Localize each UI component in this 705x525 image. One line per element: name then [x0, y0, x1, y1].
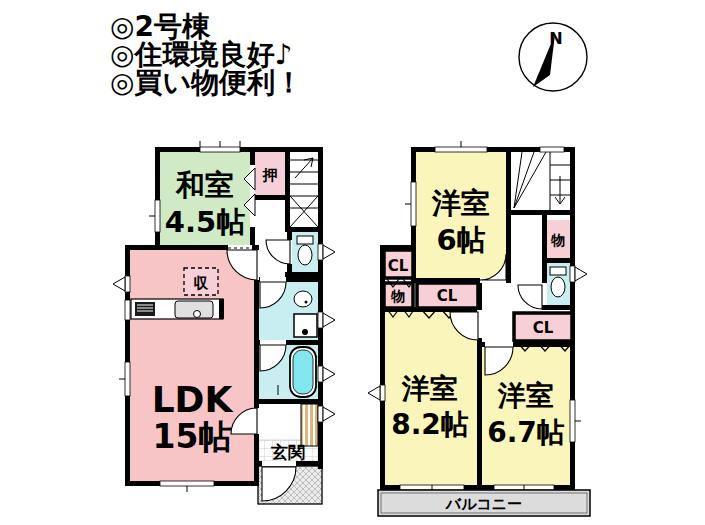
- stairs-1f: [290, 158, 318, 227]
- mono-left-label: 物: [390, 288, 405, 304]
- room6-size-label: 6帖: [436, 223, 485, 257]
- washitsu-size-label: 4.5帖: [165, 205, 245, 239]
- stove-icon: [135, 302, 155, 316]
- header-line-3: ◎買い物便利！: [110, 66, 303, 99]
- room67-name-label: 洋室: [497, 379, 554, 412]
- cl-mid-label: CL: [437, 287, 458, 305]
- storage-label: 収: [194, 274, 209, 292]
- balcony: バルコニー: [378, 490, 590, 516]
- room82-name-label: 洋室: [401, 372, 458, 405]
- floor1-plan: 和室 4.5帖 LDK 15帖 押 収 玄関: [113, 141, 335, 504]
- compass: N: [519, 23, 587, 91]
- oshiire-label: 押: [262, 166, 278, 184]
- header-text: ◎2号棟 ◎住環境良好♪ ◎買い物便利！: [110, 10, 303, 99]
- washbasin-icon: [294, 291, 312, 307]
- washitsu-name-label: 和室: [175, 168, 234, 202]
- shoe-cabinet: [301, 404, 318, 446]
- ldk-name-label: LDK: [152, 379, 234, 420]
- stairs-2f: [514, 152, 570, 210]
- toilet-1f-icon: [297, 236, 313, 265]
- bathtub-icon: [290, 347, 316, 397]
- cl-right-label: CL: [533, 319, 554, 337]
- ldk-size-label: 15帖: [153, 417, 232, 456]
- kitchen-counter: [131, 299, 224, 319]
- cl-left-label: CL: [388, 257, 409, 275]
- compass-north-label: N: [549, 29, 562, 48]
- room6-name-label: 洋室: [431, 186, 490, 220]
- mono-2f-label: 物: [550, 232, 565, 248]
- floorplan-page: ◎2号棟 ◎住環境良好♪ ◎買い物便利！ N: [0, 0, 705, 525]
- washing-machine-icon: [294, 314, 317, 337]
- floor2-plan: バルコニー 洋室 6帖 洋室 8.2帖 洋室 6.7帖 CL 物 CL CL 物: [368, 141, 590, 516]
- room82-size-label: 8.2帖: [391, 408, 469, 441]
- toilet-2f-icon: [550, 267, 566, 297]
- genkan-label: 玄関: [270, 442, 305, 462]
- balcony-label: バルコニー: [445, 495, 522, 513]
- room67-size-label: 6.7帖: [487, 416, 565, 449]
- floorplan-image: ◎2号棟 ◎住環境良好♪ ◎買い物便利！ N: [0, 0, 705, 525]
